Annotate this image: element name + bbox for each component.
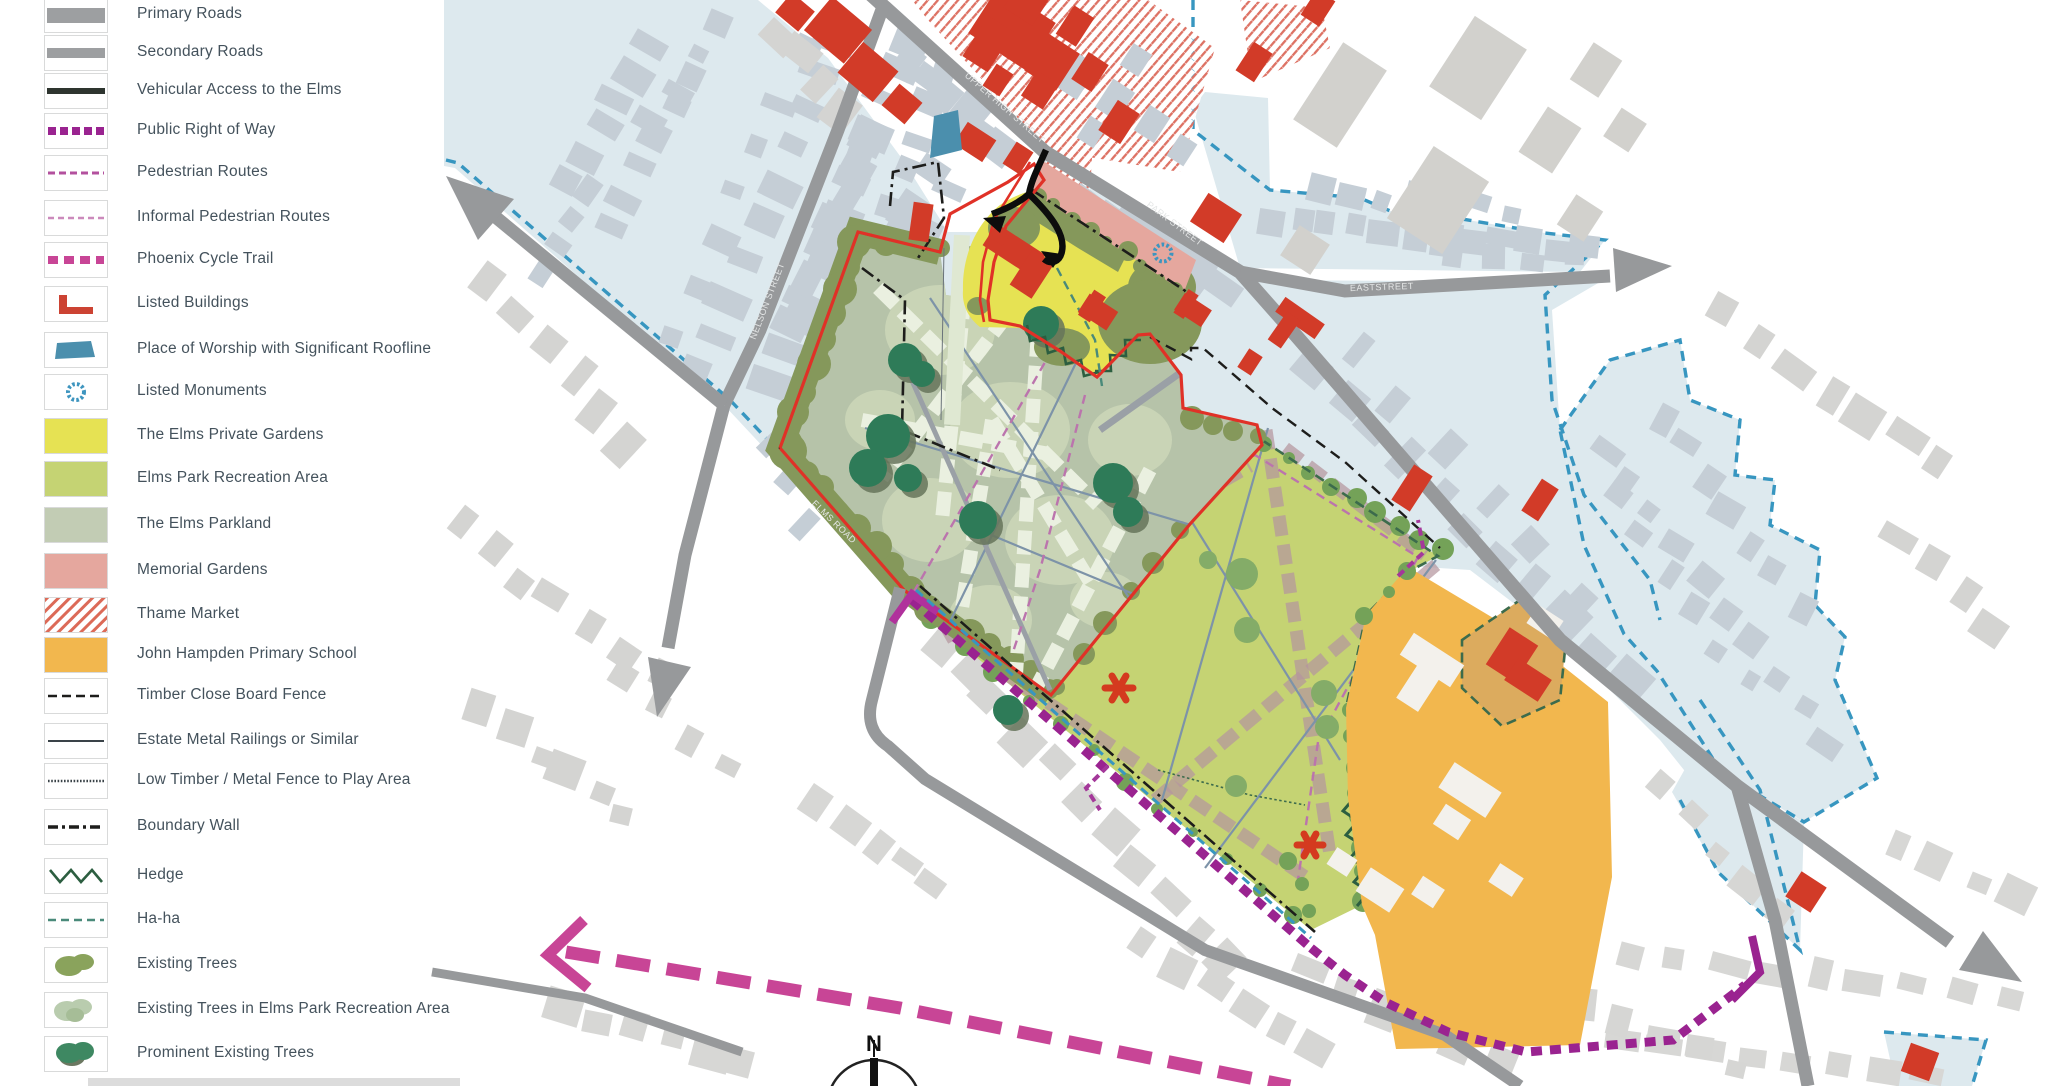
svg-text:N: N [866, 1031, 882, 1056]
